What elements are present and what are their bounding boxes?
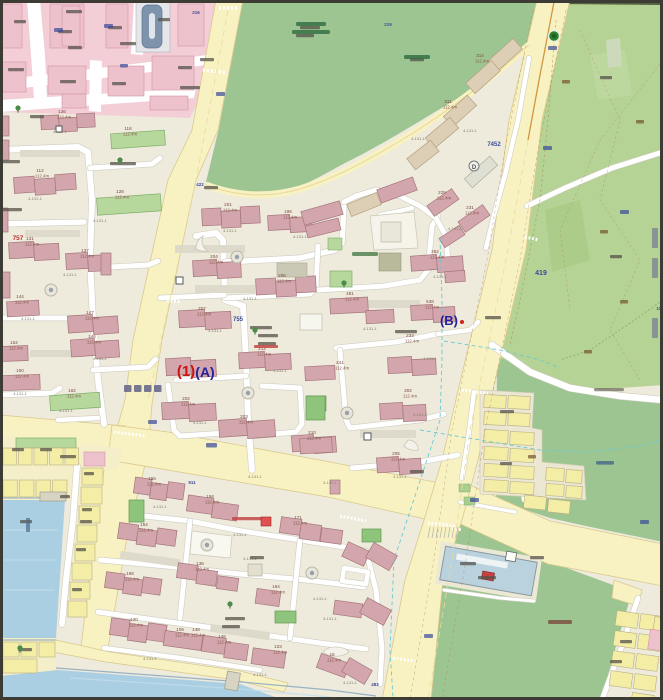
svg-text:112.4m: 112.4m [195,567,210,572]
svg-text:112.4m: 112.4m [391,457,406,462]
svg-text:4-131-1: 4-131-1 [393,474,408,479]
svg-text:112.4m: 112.4m [257,352,272,357]
svg-text:4-131-1: 4-131-1 [448,226,463,231]
svg-text:112.4m: 112.4m [35,174,50,179]
svg-text:148: 148 [192,627,200,632]
svg-text:150: 150 [16,368,24,373]
svg-text:203: 203 [240,414,248,419]
svg-text:4-131-1: 4-131-1 [59,408,74,413]
svg-text:112.4m: 112.4m [205,500,220,505]
svg-text:112.4m: 112.4m [443,105,458,110]
svg-text:144: 144 [16,294,24,299]
svg-text:207: 207 [198,306,206,311]
svg-text:171: 171 [294,515,302,520]
svg-text:4-131-1: 4-131-1 [323,616,338,621]
svg-text:419: 419 [535,270,547,277]
svg-text:4-131-1: 4-131-1 [423,356,438,361]
svg-text:201: 201 [224,202,232,207]
svg-text:4-131-1: 4-131-1 [253,672,268,677]
svg-text:4-131-1: 4-131-1 [248,474,263,479]
svg-text:252: 252 [431,249,439,254]
svg-text:112.4m: 112.4m [271,590,286,595]
svg-text:229: 229 [438,190,446,195]
svg-text:196: 196 [284,209,292,214]
svg-text:757: 757 [13,235,24,242]
svg-text:112.4m: 112.4m [139,528,154,533]
svg-text:441: 441 [336,360,344,365]
svg-text:4-131-1: 4-131-1 [323,480,338,485]
svg-text:152: 152 [10,340,18,345]
svg-text:302: 302 [404,388,412,393]
svg-text:112.4m: 112.4m [57,115,72,120]
svg-text:18: 18 [329,652,335,657]
svg-text:112.4m: 112.4m [123,132,138,137]
svg-text:206: 206 [278,273,286,278]
svg-text:112.4m: 112.4m [85,316,100,321]
svg-text:136: 136 [196,561,204,566]
svg-text:210: 210 [308,430,316,435]
svg-text:4-131-1: 4-131-1 [233,532,248,537]
svg-text:4-131-1: 4-131-1 [313,596,328,601]
svg-text:112.4m: 112.4m [405,339,420,344]
svg-text:4-131-1: 4-131-1 [63,272,78,277]
svg-text:158: 158 [206,494,214,499]
svg-text:147: 147 [86,310,94,315]
svg-text:483: 483 [371,682,379,687]
svg-text:112.4m: 112.4m [197,312,212,317]
svg-text:137: 137 [81,248,89,253]
svg-text:112.4m: 112.4m [425,305,440,310]
svg-text:911: 911 [188,480,196,485]
svg-text:219: 219 [384,22,392,27]
svg-text:4-131-1: 4-131-1 [223,228,238,233]
svg-text:146: 146 [218,634,226,639]
svg-text:112.4m: 112.4m [465,211,480,216]
svg-text:112: 112 [36,168,44,173]
svg-text:4-131-1: 4-131-1 [153,504,168,509]
svg-text:112.4m: 112.4m [293,521,308,526]
svg-text:314: 314 [476,53,484,58]
svg-text:156: 156 [148,476,156,481]
svg-text:112.4m: 112.4m [125,577,140,582]
svg-text:154: 154 [140,522,148,527]
svg-text:112.4m: 112.4m [9,346,24,351]
svg-text:112.4m: 112.4m [403,394,418,399]
svg-text:(A): (A) [195,364,214,380]
svg-text:7452: 7452 [487,142,501,148]
svg-text:112.4m: 112.4m [283,215,298,220]
svg-text:162: 162 [68,388,76,393]
svg-text:538: 538 [426,299,434,304]
svg-text:202: 202 [182,396,190,401]
svg-text:4-131-1: 4-131-1 [93,356,108,361]
svg-text:112.4m: 112.4m [181,402,196,407]
svg-text:4-131-1: 4-131-1 [413,412,428,417]
svg-text:233: 233 [406,333,414,338]
svg-text:112.4m: 112.4m [129,623,144,628]
svg-text:118: 118 [124,126,132,131]
svg-text:112.4m: 112.4m [277,279,292,284]
svg-text:4-131-1: 4-131-1 [143,656,158,661]
svg-text:164: 164 [272,584,280,589]
svg-text:4-131-1: 4-131-1 [433,274,448,279]
svg-text:422: 422 [196,182,204,187]
svg-text:112.4m: 112.4m [273,650,288,655]
svg-text:(B): (B) [440,313,458,328]
svg-text:112.4m: 112.4m [239,420,254,425]
svg-text:4-131-1: 4-131-1 [411,136,426,141]
svg-text:4-131-1: 4-131-1 [21,316,36,321]
svg-text:4-131-1: 4-131-1 [243,296,258,301]
svg-text:112.4m: 112.4m [335,366,350,371]
svg-text:112.4m: 112.4m [67,394,82,399]
svg-text:112.4m: 112.4m [147,482,162,487]
svg-text:112.4m: 112.4m [191,633,206,638]
svg-text:112.4m: 112.4m [307,436,322,441]
svg-text:168: 168 [126,571,134,576]
svg-text:146: 146 [88,334,96,339]
svg-text:216: 216 [192,10,200,15]
svg-text:204: 204 [210,254,218,259]
svg-text:481: 481 [346,291,354,296]
svg-text:4-131-1: 4-131-1 [343,680,358,685]
svg-text:112.4m: 112.4m [223,208,238,213]
svg-text:112.4m: 112.4m [80,254,95,259]
svg-text:136: 136 [58,109,66,114]
svg-text:112.4m: 112.4m [87,340,102,345]
svg-text:120: 120 [130,617,138,622]
svg-text:4-131-1: 4-131-1 [363,326,378,331]
svg-text:4-131-1: 4-131-1 [13,391,28,396]
svg-text:311: 311 [444,99,452,104]
svg-text:112.4m: 112.4m [175,633,190,638]
svg-text:112.4m: 112.4m [437,196,452,201]
svg-text:4-131-1: 4-131-1 [28,196,43,201]
svg-text:(1): (1) [177,363,195,380]
svg-text:112.4m: 112.4m [327,658,342,663]
svg-text:231: 231 [466,205,474,210]
svg-text:205: 205 [392,451,400,456]
svg-text:D: D [472,165,477,171]
svg-text:112.4m: 112.4m [209,260,224,265]
svg-text:112.4m: 112.4m [15,300,30,305]
svg-text:4-131-1: 4-131-1 [193,420,208,425]
svg-text:131: 131 [26,236,34,241]
svg-text:112.4m: 112.4m [115,195,130,200]
svg-text:109: 109 [176,627,184,632]
svg-text:112.4m: 112.4m [475,59,490,64]
svg-text:4-131-1: 4-131-1 [273,368,288,373]
svg-text:755: 755 [233,317,244,323]
svg-text:4-131-1: 4-131-1 [208,328,223,333]
svg-text:112.4m: 112.4m [25,242,40,247]
svg-text:128: 128 [116,189,124,194]
svg-text:112.4m: 112.4m [430,255,445,260]
svg-text:112.4m: 112.4m [15,374,30,379]
svg-text:103: 103 [274,644,282,649]
svg-text:112.4m: 112.4m [345,297,360,302]
svg-text:4-131-1: 4-131-1 [93,218,108,223]
svg-text:4-131-1: 4-131-1 [293,234,308,239]
svg-text:4-131-1: 4-131-1 [463,128,478,133]
svg-text:112.4m: 112.4m [217,640,232,645]
